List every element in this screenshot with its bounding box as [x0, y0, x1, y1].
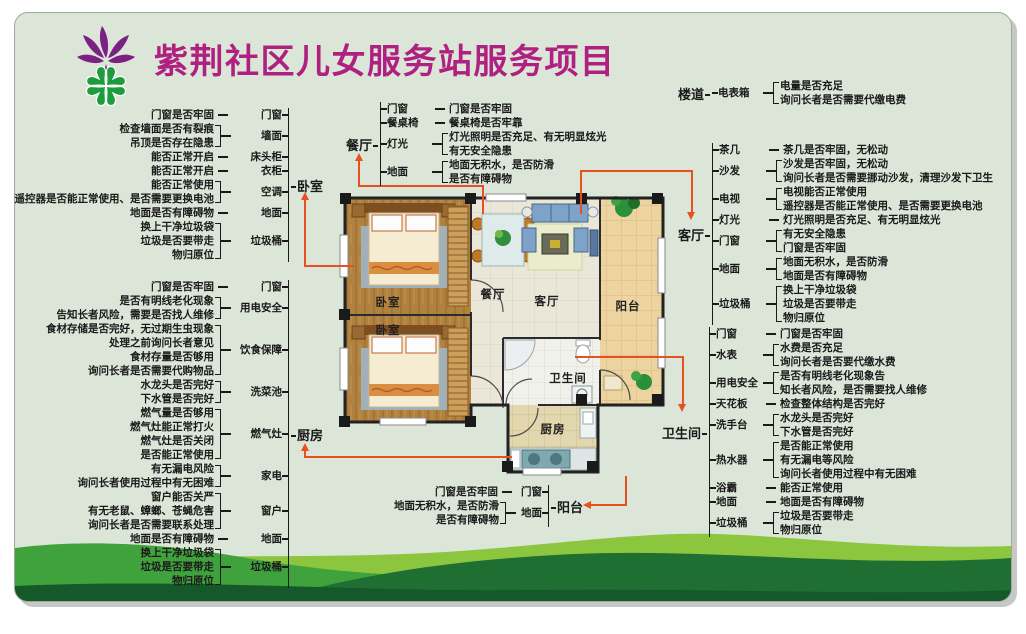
bracket-connector	[763, 439, 779, 481]
category-label: 茶几	[719, 143, 765, 157]
check-item: 能否正常使用	[780, 481, 843, 495]
service-group: 灯光灯光照明是否充足、有无明显炫光有无安全隐患	[381, 130, 607, 158]
bracket-connector	[766, 255, 782, 283]
check-item: 食材存量是否够用	[46, 350, 214, 364]
poster-page: 紫荆社区儿女服务站服务项目	[0, 0, 1026, 634]
check-item: 地面是否有障碍物	[780, 495, 864, 509]
category-label: 垃圾桶	[232, 560, 282, 574]
bracket-connector	[215, 462, 231, 490]
check-item: 茶几是否牢固，无松动	[783, 143, 888, 157]
check-items: 地面无积水，是否防滑地面是否有障碍物	[783, 255, 888, 283]
check-item: 燃气灶是否关闭	[130, 434, 214, 448]
check-items: 沙发是否牢固，无松动询问长者是否需要挪动沙发，清理沙发下卫生	[783, 157, 993, 185]
category-label: 天花板	[716, 397, 762, 411]
check-items: 能否正常开启	[151, 150, 214, 164]
category-label: 浴霸	[716, 481, 762, 495]
check-item: 换上干净垃圾袋	[141, 220, 215, 234]
dining-label: 餐厅	[344, 135, 380, 154]
check-item: 遥控器是否能正常使用、是否需要更换电池	[783, 199, 983, 213]
category-label: 地面	[232, 206, 282, 220]
service-group: 有无漏电风险询问长者使用过程中有无困难家电	[12, 462, 288, 490]
bracket-connector	[215, 150, 231, 164]
check-items: 水费是否充足询问长者是否要代缴水费	[780, 341, 896, 369]
check-item: 处理之前询问长者意见	[46, 336, 214, 350]
tick-line	[282, 566, 288, 568]
check-item: 询问长者是否要代缴水费	[780, 355, 896, 369]
check-items: 水龙头是否完好下水管是否完好	[780, 411, 854, 439]
tick-line	[282, 391, 288, 393]
connector-line	[482, 185, 484, 214]
bracket-connector	[215, 280, 231, 294]
check-item: 餐桌椅是否牢靠	[449, 116, 523, 130]
check-items: 地面是否有障碍物	[130, 206, 214, 220]
tick-line	[282, 156, 288, 158]
service-group: 换上干净垃圾袋垃圾是否要带走物归原位垃圾桶	[12, 220, 288, 262]
check-item: 询问长者使用过程中有无困难	[780, 467, 917, 481]
check-item: 换上干净垃圾袋	[783, 283, 857, 297]
service-group: 燃气量是否够用燃气灶能正常打火燃气灶是否关闭是否能正常使用燃气灶	[12, 406, 288, 462]
check-item: 水龙头是否完好	[780, 411, 854, 425]
category-label: 灯光	[719, 213, 765, 227]
bracket-connector	[215, 322, 231, 378]
category-label: 灯光	[387, 137, 431, 151]
check-items: 换上干净垃圾袋垃圾是否要带走物归原位	[141, 546, 215, 588]
bracket-connector	[215, 406, 231, 462]
bathroom-label: 卫生间	[660, 423, 709, 442]
check-item: 换上干净垃圾袋	[141, 546, 215, 560]
service-group: 洗手台水龙头是否完好下水管是否完好	[710, 411, 927, 439]
corridor-groups: 电表箱电量是否充足询问长者是否需要代缴电费	[712, 79, 906, 107]
check-item: 能否正常使用	[15, 178, 215, 192]
service-group: 餐桌椅餐桌椅是否牢靠	[381, 116, 607, 130]
category-label: 地面	[387, 165, 431, 179]
balcony-groups: 门窗是否牢固门窗地面无积水，是否防滑是否有障碍物地面	[394, 485, 549, 527]
check-item: 能否正常开启	[151, 164, 214, 178]
category-label: 热水器	[716, 453, 762, 467]
bracket-connector	[215, 532, 231, 546]
tick-line	[282, 191, 288, 193]
check-item: 地面无积水，是否防滑	[394, 499, 499, 513]
tick-line	[282, 349, 288, 351]
section-bedroom: 门窗是否牢固门窗检查墙面是否有裂痕吊顶是否存在隐患墙面能否正常开启床头柜能否正常…	[12, 108, 325, 262]
service-group: 能否正常开启衣柜	[12, 164, 288, 178]
check-items: 电量是否充足询问长者是否需要代缴电费	[780, 79, 906, 107]
check-items: 换上干净垃圾袋垃圾是否要带走物归原位	[783, 283, 857, 325]
tick-line	[542, 491, 548, 493]
room-label-dining: 餐厅	[480, 287, 506, 301]
bracket-connector	[499, 485, 515, 499]
check-items: 窗户能否关严有无老鼠、蟑螂、苍蝇危害询问长者是否需要联系处理	[88, 490, 214, 532]
connector-line	[304, 456, 512, 458]
bracket-connector	[215, 294, 231, 322]
check-items: 有无安全隐患门窗是否牢固	[783, 227, 846, 255]
check-item: 是否有障碍物	[449, 172, 554, 186]
check-item: 地面无积水，是否防滑	[783, 255, 888, 269]
check-items: 地面是否有障碍物	[780, 495, 864, 509]
category-label: 地面	[232, 532, 282, 546]
service-group: 水表水费是否充足询问长者是否要代缴水费	[710, 341, 927, 369]
tick-line	[282, 510, 288, 512]
bracket-connector	[215, 122, 231, 150]
bracket-connector	[215, 490, 231, 532]
check-item: 地面是否有障碍物	[130, 532, 214, 546]
check-item: 遥控器是否能正常使用、是否需要更换电池	[15, 192, 215, 206]
check-item: 检查整体结构是否完好	[780, 397, 885, 411]
service-group: 用电安全是否有明线老化现象告知长者风险，是否需要找人维修	[710, 369, 927, 397]
category-label: 垃圾桶	[716, 516, 762, 530]
check-items: 能否正常使用	[780, 481, 843, 495]
check-item: 物归原位	[780, 523, 854, 537]
service-group: 门窗是否牢固门窗	[12, 280, 288, 294]
check-item: 下水管是否完好	[141, 392, 215, 406]
bracket-connector	[215, 378, 231, 406]
check-item: 窗户能否关严	[88, 490, 214, 504]
check-items: 是否有明线老化现象告知长者风险，需要是否找人维修	[57, 294, 215, 322]
check-item: 水费是否充足	[780, 341, 896, 355]
check-item: 地面是否有障碍物	[783, 269, 888, 283]
check-item: 电视能否正常使用	[783, 185, 983, 199]
check-item: 灯光照明是否充足、有无明显炫光	[449, 130, 607, 144]
check-item: 水龙头是否完好	[141, 378, 215, 392]
category-label: 洗菜池	[232, 385, 282, 399]
category-label: 门窗	[232, 280, 282, 294]
check-item: 物归原位	[141, 574, 215, 588]
category-label: 门窗	[716, 327, 762, 341]
service-group: 地面无积水，是否防滑是否有障碍物地面	[394, 499, 548, 527]
check-item: 有无安全隐患	[449, 144, 607, 158]
bedroom-label: 卧室	[289, 176, 325, 195]
check-item: 燃气量是否够用	[130, 406, 214, 420]
bracket-connector	[215, 108, 231, 122]
check-item: 是否有障碍物	[394, 513, 499, 527]
section-kitchen: 门窗是否牢固门窗是否有明线老化现象告知长者风险，需要是否找人维修用电安全食材存储…	[12, 280, 325, 588]
service-group: 浴霸能否正常使用	[710, 481, 927, 495]
check-item: 物归原位	[141, 248, 215, 262]
check-items: 餐桌椅是否牢靠	[449, 116, 523, 130]
service-group: 垃圾桶换上干净垃圾袋垃圾是否要带走物归原位	[713, 283, 993, 325]
service-group: 换上干净垃圾袋垃圾是否要带走物归原位垃圾桶	[12, 546, 288, 588]
bracket-connector	[432, 158, 448, 186]
check-item: 食材存储是否完好，无过期生虫现象	[46, 322, 214, 336]
bracket-connector	[766, 213, 782, 227]
service-group: 门窗门窗是否牢固	[381, 102, 607, 116]
service-group: 门窗是否牢固门窗	[12, 108, 288, 122]
check-item: 电量是否充足	[780, 79, 906, 93]
bracket-connector	[432, 116, 448, 130]
bracket-connector	[763, 481, 779, 495]
bracket-connector	[763, 509, 779, 537]
check-item: 是否有明线老化现象	[57, 294, 215, 308]
category-label: 沙发	[719, 164, 765, 178]
bracket-connector	[763, 341, 779, 369]
service-group: 地面地面无积水，是否防滑是否有障碍物	[381, 158, 607, 186]
connector-line	[591, 504, 627, 506]
section-living: 客厅茶几茶几是否牢固，无松动沙发沙发是否牢固，无松动询问长者是否需要挪动沙发，清…	[676, 143, 993, 325]
check-item: 告知长者风险，需要是否找人维修	[57, 308, 215, 322]
category-label: 电表箱	[718, 86, 762, 100]
balcony-label: 阳台	[549, 497, 585, 516]
check-items: 食材存储是否完好，无过期生虫现象处理之前询问长者意见食材存量是否够用询问长者是否…	[46, 322, 214, 378]
category-label: 电视	[719, 192, 765, 206]
check-items: 有无漏电风险询问长者使用过程中有无困难	[78, 462, 215, 490]
corridor-label: 楼道	[676, 84, 712, 103]
logo-clover	[85, 65, 128, 108]
check-item: 知长者风险，是否需要找人维修	[780, 383, 927, 397]
bracket-connector	[766, 157, 782, 185]
check-items: 灯光照明是否充足、有无明显炫光	[783, 213, 941, 227]
service-group: 地面地面是否有障碍物	[710, 495, 927, 509]
bathroom-groups: 门窗门窗是否牢固水表水费是否充足询问长者是否要代缴水费用电安全是否有明线老化现象…	[709, 327, 927, 537]
check-item: 垃圾是否要带走	[141, 234, 215, 248]
service-group: 门窗门窗是否牢固	[710, 327, 927, 341]
bracket-connector	[432, 130, 448, 158]
bracket-connector	[215, 546, 231, 588]
check-item: 有无安全隐患	[783, 227, 846, 241]
service-group: 地面是否有障碍物地面	[12, 206, 288, 220]
service-group: 垃圾桶垃圾是否要带走物归原位	[710, 509, 927, 537]
category-label: 窗户	[232, 504, 282, 518]
service-group: 窗户能否关严有无老鼠、蟑螂、苍蝇危害询问长者是否需要联系处理窗户	[12, 490, 288, 532]
check-item: 是否能正常使用	[130, 448, 214, 462]
service-group: 茶几茶几是否牢固，无松动	[713, 143, 993, 157]
check-items: 地面是否有障碍物	[130, 532, 214, 546]
service-group: 地面地面无积水，是否防滑地面是否有障碍物	[713, 255, 993, 283]
service-group: 沙发沙发是否牢固，无松动询问长者是否需要挪动沙发，清理沙发下卫生	[713, 157, 993, 185]
check-item: 下水管是否完好	[780, 425, 854, 439]
check-items: 燃气量是否够用燃气灶能正常打火燃气灶是否关闭是否能正常使用	[130, 406, 214, 462]
bracket-connector	[763, 495, 779, 509]
tick-line	[282, 433, 288, 435]
bracket-connector	[763, 397, 779, 411]
bracket-connector	[766, 143, 782, 157]
bracket-connector	[766, 185, 782, 213]
service-group: 天花板检查整体结构是否完好	[710, 397, 927, 411]
service-group: 能否正常使用遥控器是否能正常使用、是否需要更换电池空调	[12, 178, 288, 206]
living-label: 客厅	[676, 225, 712, 244]
check-items: 茶几是否牢固，无松动	[783, 143, 888, 157]
room-label-kitchen: 厨房	[541, 422, 566, 436]
check-item: 是否能正常使用	[780, 439, 917, 453]
check-item: 燃气灶能正常打火	[130, 420, 214, 434]
connector-line	[304, 265, 354, 267]
tick-line	[282, 307, 288, 309]
bracket-connector	[215, 178, 231, 206]
check-item: 门窗是否牢固	[435, 485, 498, 499]
check-items: 垃圾是否要带走物归原位	[780, 509, 854, 537]
service-group: 水龙头是否完好下水管是否完好洗菜池	[12, 378, 288, 406]
bracket-connector	[766, 283, 782, 325]
check-items: 门窗是否牢固	[151, 108, 214, 122]
poster-title: 紫荆社区儿女服务站服务项目	[154, 34, 616, 83]
service-group: 门窗是否牢固门窗	[394, 485, 548, 499]
bracket-connector	[766, 227, 782, 255]
living-groups: 茶几茶几是否牢固，无松动沙发沙发是否牢固，无松动询问长者是否需要挪动沙发，清理沙…	[712, 143, 993, 325]
check-items: 检查整体结构是否完好	[780, 397, 885, 411]
category-label: 地面	[716, 495, 762, 509]
tick-line	[282, 538, 288, 540]
check-items: 门窗是否牢固	[780, 327, 843, 341]
category-label: 衣柜	[232, 164, 282, 178]
check-items: 灯光照明是否充足、有无明显炫光有无安全隐患	[449, 130, 607, 158]
tick-line	[282, 114, 288, 116]
check-item: 门窗是否牢固	[780, 327, 843, 341]
service-group: 门窗有无安全隐患门窗是否牢固	[713, 227, 993, 255]
bracket-connector	[763, 369, 779, 397]
category-label: 垃圾桶	[232, 234, 282, 248]
check-items: 门窗是否牢固	[151, 280, 214, 294]
section-balcony: 门窗是否牢固门窗地面无积水，是否防滑是否有障碍物地面阳台	[394, 485, 585, 527]
check-item: 询问长者是否需要联系处理	[88, 518, 214, 532]
bracket-connector	[215, 164, 231, 178]
room-label-living: 客厅	[534, 294, 560, 308]
check-item: 门窗是否牢固	[449, 102, 512, 116]
check-items: 电视能否正常使用遥控器是否能正常使用、是否需要更换电池	[783, 185, 983, 213]
service-group: 电视电视能否正常使用遥控器是否能正常使用、是否需要更换电池	[713, 185, 993, 213]
tick-line	[282, 286, 288, 288]
check-item: 物归原位	[783, 311, 857, 325]
check-item: 询问长者是否需要代购物品	[46, 364, 214, 378]
category-label: 水表	[716, 348, 762, 362]
check-item: 垃圾是否要带走	[783, 297, 857, 311]
dining-groups: 门窗门窗是否牢固餐桌椅餐桌椅是否牢靠灯光灯光照明是否充足、有无明显炫光有无安全隐…	[380, 102, 607, 186]
check-items: 是否有明线老化现象告知长者风险，是否需要找人维修	[780, 369, 927, 397]
check-items: 地面无积水，是否防滑是否有障碍物	[394, 499, 499, 527]
check-item: 垃圾是否要带走	[780, 509, 854, 523]
kitchen-label: 厨房	[289, 425, 325, 444]
check-items: 换上干净垃圾袋垃圾是否要带走物归原位	[141, 220, 215, 262]
section-corridor: 楼道电表箱电量是否充足询问长者是否需要代缴电费	[676, 79, 906, 107]
bracket-connector	[500, 499, 516, 527]
check-item: 灯光照明是否充足、有无明显炫光	[783, 213, 941, 227]
section-dining: 餐厅门窗门窗是否牢固餐桌椅餐桌椅是否牢靠灯光灯光照明是否充足、有无明显炫光有无安…	[344, 102, 607, 186]
check-item: 地面无积水，是否防滑	[449, 158, 554, 172]
category-label: 地面	[719, 262, 765, 276]
service-group: 灯光灯光照明是否充足、有无明显炫光	[713, 213, 993, 227]
check-item: 吊顶是否存在隐患	[120, 136, 215, 150]
section-bathroom: 卫生间门窗门窗是否牢固水表水费是否充足询问长者是否要代缴水费用电安全是否有明线老…	[660, 327, 927, 537]
service-group: 电表箱电量是否充足询问长者是否需要代缴电费	[712, 79, 906, 107]
tick-line	[282, 135, 288, 137]
bedroom-groups: 门窗是否牢固门窗检查墙面是否有裂痕吊顶是否存在隐患墙面能否正常开启床头柜能否正常…	[12, 108, 289, 262]
room-label-bedroom2: 卧室	[376, 323, 401, 337]
category-label: 燃气灶	[232, 427, 282, 441]
category-label: 用电安全	[232, 301, 282, 315]
category-label: 墙面	[232, 129, 282, 143]
category-label: 床头柜	[232, 150, 282, 164]
category-label: 家电	[232, 469, 282, 483]
check-items: 是否能正常使用有无漏电等风险询问长者使用过程中有无困难	[780, 439, 917, 481]
service-group: 检查墙面是否有裂痕吊顶是否存在隐患墙面	[12, 122, 288, 150]
connector-line	[625, 476, 627, 506]
check-item: 能否正常开启	[151, 150, 214, 164]
category-label: 门窗	[516, 485, 542, 499]
category-label: 门窗	[719, 234, 765, 248]
check-item: 有无漏电等风险	[780, 453, 917, 467]
check-item: 地面是否有障碍物	[130, 206, 214, 220]
kitchen-groups: 门窗是否牢固门窗是否有明线老化现象告知长者风险，需要是否找人维修用电安全食材存储…	[12, 280, 289, 588]
category-label: 洗手台	[716, 418, 762, 432]
service-group: 能否正常开启床头柜	[12, 150, 288, 164]
category-label: 门窗	[387, 102, 431, 116]
check-item: 询问长者是否需要挪动沙发，清理沙发下卫生	[783, 171, 993, 185]
check-item: 门窗是否牢固	[151, 108, 214, 122]
category-label: 饮食保障	[232, 343, 282, 357]
check-items: 地面无积水，是否防滑是否有障碍物	[449, 158, 554, 186]
floorplan-drawing: 卧室 卧室 餐厅 客厅 阳台 卫生间 厨房	[336, 190, 676, 490]
check-item: 检查墙面是否有裂痕	[120, 122, 215, 136]
check-item: 询问长者是否需要代缴电费	[780, 93, 906, 107]
bracket-connector	[763, 79, 779, 107]
check-items: 能否正常开启	[151, 164, 214, 178]
check-item: 门窗是否牢固	[783, 241, 846, 255]
service-group: 地面是否有障碍物地面	[12, 532, 288, 546]
room-label-bedroom1: 卧室	[376, 295, 401, 309]
check-items: 水龙头是否完好下水管是否完好	[141, 378, 215, 406]
room-label-balcony: 阳台	[616, 299, 641, 313]
check-item: 沙发是否牢固，无松动	[783, 157, 993, 171]
tick-line	[282, 475, 288, 477]
category-label: 用电安全	[716, 376, 762, 390]
category-label: 空调	[232, 185, 282, 199]
bracket-connector	[763, 327, 779, 341]
category-label: 垃圾桶	[719, 297, 765, 311]
check-item: 有无老鼠、蟑螂、苍蝇危害	[88, 504, 214, 518]
check-items: 能否正常使用遥控器是否能正常使用、是否需要更换电池	[15, 178, 215, 206]
tick-line	[282, 212, 288, 214]
check-items: 门窗是否牢固	[435, 485, 498, 499]
check-item: 询问长者使用过程中有无困难	[78, 476, 215, 490]
community-logo	[62, 24, 150, 116]
bracket-connector	[763, 411, 779, 439]
category-label: 门窗	[232, 108, 282, 122]
check-items: 检查墙面是否有裂痕吊顶是否存在隐患	[120, 122, 215, 150]
tick-line	[282, 170, 288, 172]
service-group: 是否有明线老化现象告知长者风险，需要是否找人维修用电安全	[12, 294, 288, 322]
check-item: 门窗是否牢固	[151, 280, 214, 294]
check-items: 门窗是否牢固	[449, 102, 512, 116]
bracket-connector	[432, 102, 448, 116]
check-item: 垃圾是否要带走	[141, 560, 215, 574]
category-label: 餐桌椅	[387, 116, 431, 130]
tick-line	[282, 240, 288, 242]
bedroom2-furniture	[352, 325, 468, 416]
tick-line	[542, 512, 548, 514]
bracket-connector	[215, 220, 231, 262]
service-group: 热水器是否能正常使用有无漏电等风险询问长者使用过程中有无困难	[710, 439, 927, 481]
category-label: 地面	[517, 506, 542, 520]
service-group: 食材存储是否完好，无过期生虫现象处理之前询问长者意见食材存量是否够用询问长者是否…	[12, 322, 288, 378]
room-label-bathroom: 卫生间	[549, 371, 587, 385]
logo-flower	[77, 26, 135, 76]
bracket-connector	[215, 206, 231, 220]
check-item: 是否有明线老化现象告	[780, 369, 927, 383]
check-item: 有无漏电风险	[78, 462, 215, 476]
